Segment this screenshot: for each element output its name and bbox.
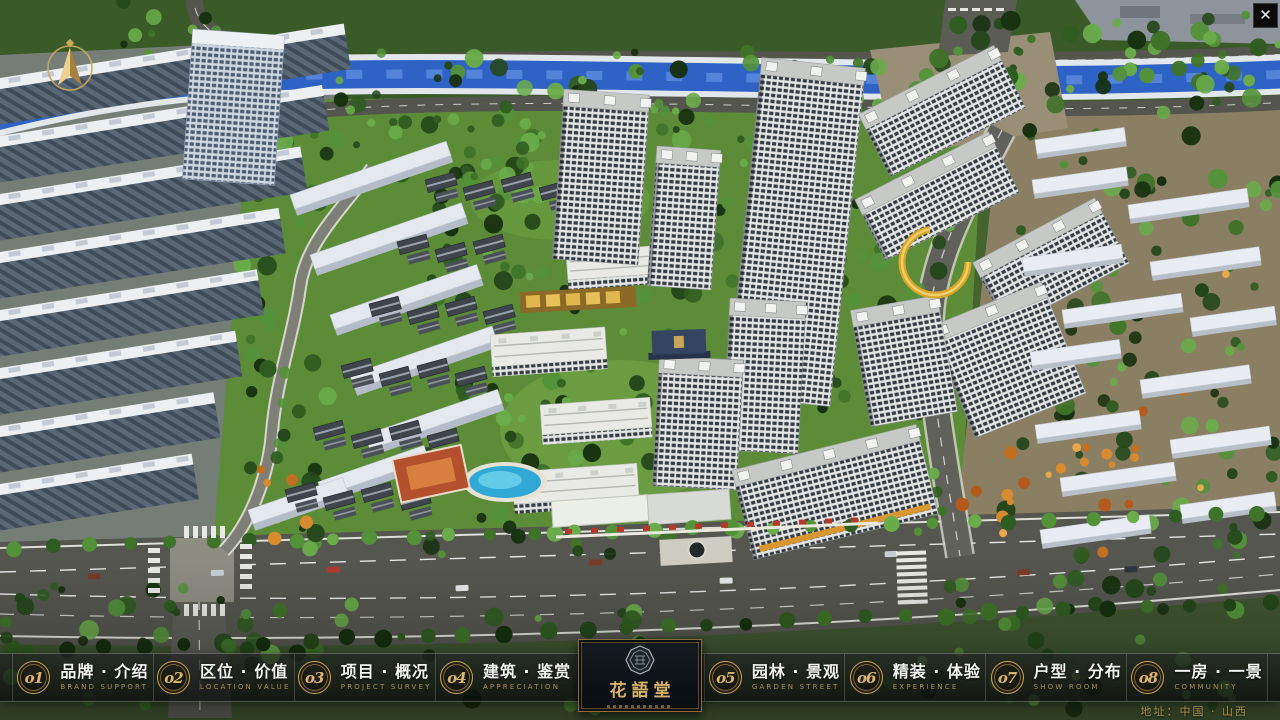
nav-number-badge: o2	[157, 661, 190, 694]
nav-label-en: APPRECIATION	[483, 684, 560, 692]
nav-label-en: BRAND SUPPORT	[60, 684, 148, 692]
project-address: 地址：中国 · 山西	[1141, 703, 1249, 719]
nav-item-architecture[interactable]: o4 建筑 · 鉴赏 APPRECIATION	[435, 654, 576, 701]
nav-label-zh: 园林 · 景观	[752, 663, 840, 681]
nav-number-badge: o1	[17, 661, 50, 694]
nav-item-garden[interactable]: o5 园林 · 景观 GARDEN STREET	[704, 654, 845, 701]
project-logo-panel[interactable]: 花語堂	[578, 639, 702, 712]
project-logo-title: 花語堂	[605, 676, 676, 701]
nav-item-project[interactable]: o3 项目 · 概况 PROJECT SURVEY	[294, 654, 435, 701]
nav-label-en: COMMUNITY	[1174, 684, 1237, 692]
nav-number-badge: o6	[850, 661, 883, 694]
nav-label-en: SHOW ROOM	[1034, 684, 1100, 692]
nav-label-zh: 一房 · 一景	[1174, 663, 1262, 681]
sales-presentation-screen: ✕ o1 品牌 · 介绍 BRAND SUPPORT o2 区位 · 价值 LO…	[0, 0, 1280, 720]
nav-label-en: LOCATION VALUE	[200, 684, 291, 692]
close-button[interactable]: ✕	[1253, 3, 1278, 28]
nav-item-brand[interactable]: o1 品牌 · 介绍 BRAND SUPPORT	[12, 654, 153, 701]
nav-label-zh: 品牌 · 介绍	[60, 663, 148, 681]
nav-label-zh: 建筑 · 鉴赏	[483, 663, 571, 681]
logo-subtitle-decoration	[607, 705, 673, 708]
nav-label-en: PROJECT SURVEY	[341, 684, 432, 692]
nav-item-floorplan[interactable]: o7 户型 · 分布 SHOW ROOM	[985, 654, 1126, 701]
octagon-seal-icon	[625, 645, 655, 675]
nav-item-location[interactable]: o2 区位 · 价值 LOCATION VALUE	[153, 654, 294, 701]
north-compass-icon	[42, 34, 98, 96]
nav-label-zh: 项目 · 概况	[341, 663, 429, 681]
nav-label-zh: 户型 · 分布	[1034, 663, 1122, 681]
nav-label-zh: 精装 · 体验	[893, 663, 981, 681]
nav-number-badge: o4	[440, 661, 473, 694]
nav-number-badge: o3	[298, 661, 331, 694]
nav-item-interior[interactable]: o6 精装 · 体验 EXPERIENCE	[844, 654, 985, 701]
nav-item-views[interactable]: o8 一房 · 一景 COMMUNITY	[1126, 654, 1268, 701]
masterplan-map-render	[0, 0, 1280, 720]
nav-number-badge: o8	[1131, 661, 1164, 694]
nav-label-zh: 区位 · 价值	[200, 663, 288, 681]
nav-number-badge: o5	[709, 661, 742, 694]
close-icon: ✕	[1259, 8, 1272, 23]
nav-number-badge: o7	[991, 661, 1024, 694]
nav-label-en: GARDEN STREET	[752, 684, 840, 692]
nav-label-en: EXPERIENCE	[893, 684, 959, 692]
